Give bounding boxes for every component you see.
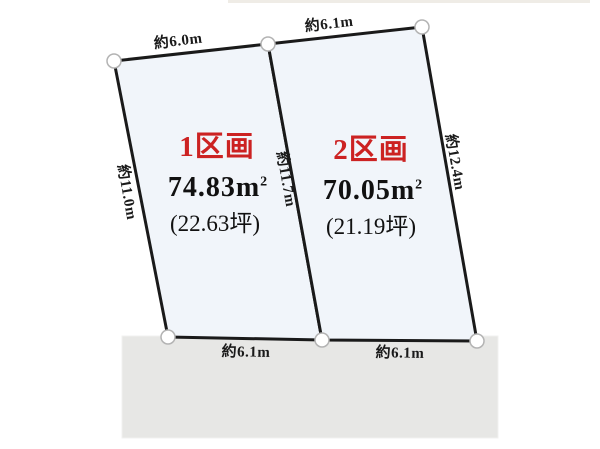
parcel-2-area-value: 70.05m [323, 175, 415, 206]
road-area [122, 336, 498, 438]
vertex-marker-top-middle [261, 37, 275, 51]
vertex-marker-bottom-left [161, 330, 175, 344]
parcel-1-name: 1区画 [179, 123, 255, 165]
dimension-bottom-left-edge: 約6.1m [221, 340, 270, 362]
vertex-marker-bottom-middle [315, 333, 329, 347]
parcel-1-area: 74.83m2 [168, 172, 268, 204]
land-plot-diagram: 約6.0m 約6.1m 約11.0m 約11.7m 約12.4m 約6.1m 約… [0, 0, 600, 449]
parcel-2-area-superscript: 2 [415, 178, 423, 193]
vertex-marker-top-right [415, 20, 429, 34]
parcel-2-area: 70.05m2 [323, 175, 423, 207]
plot-shapes-canvas [0, 0, 600, 449]
top-crop-artifact [228, 0, 590, 3]
vertex-marker-bottom-right [470, 334, 484, 348]
vertex-marker-top-left [107, 54, 121, 68]
parcel-1-tsubo: (22.63坪) [170, 204, 260, 238]
parcel-2-tsubo: (21.19坪) [326, 207, 416, 241]
parcel-2-name: 2区画 [333, 126, 409, 168]
parcel-1-area-value: 74.83m [168, 172, 260, 203]
parcel-1-area-superscript: 2 [260, 175, 268, 190]
dimension-bottom-right-edge: 約6.1m [375, 341, 424, 363]
